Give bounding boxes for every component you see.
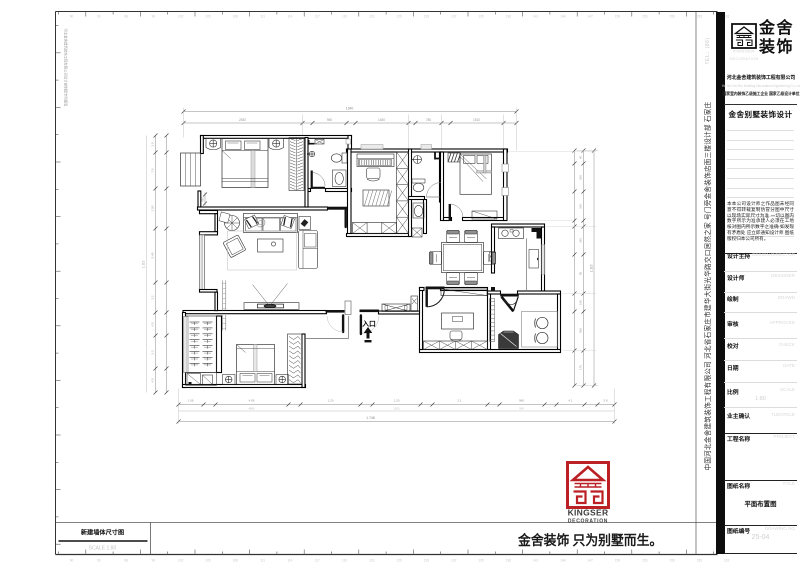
svg-text:1460: 1460 bbox=[378, 118, 385, 122]
svg-text:132: 132 bbox=[451, 15, 457, 19]
svg-text:138: 138 bbox=[506, 559, 512, 563]
svg-text:5.8: 5.8 bbox=[603, 399, 608, 403]
svg-text:96: 96 bbox=[124, 559, 128, 563]
svg-text:156: 156 bbox=[669, 15, 675, 19]
svg-text:1510: 1510 bbox=[473, 118, 480, 122]
svg-text:980: 980 bbox=[519, 407, 524, 411]
svg-text:1.748: 1.748 bbox=[366, 416, 375, 420]
svg-text:147: 147 bbox=[588, 15, 594, 19]
svg-text:1200: 1200 bbox=[393, 407, 400, 411]
svg-text:135: 135 bbox=[478, 559, 484, 563]
svg-text:105: 105 bbox=[205, 15, 211, 19]
svg-text:175: 175 bbox=[579, 365, 583, 370]
svg-text:96: 96 bbox=[124, 15, 128, 19]
svg-text:150: 150 bbox=[615, 15, 621, 19]
svg-text:3.3: 3.3 bbox=[151, 350, 155, 355]
svg-text:345: 345 bbox=[579, 238, 583, 243]
svg-text:DECORATION: DECORATION bbox=[568, 519, 608, 525]
svg-text:99: 99 bbox=[152, 559, 156, 563]
svg-text:123: 123 bbox=[369, 559, 375, 563]
svg-text:156: 156 bbox=[669, 559, 675, 563]
svg-text:7.5: 7.5 bbox=[151, 168, 155, 173]
svg-text:4.88: 4.88 bbox=[249, 399, 255, 403]
svg-text:1.20: 1.20 bbox=[328, 399, 334, 403]
svg-text:147: 147 bbox=[588, 559, 594, 563]
svg-text:1.118: 1.118 bbox=[142, 260, 146, 268]
svg-text:138: 138 bbox=[506, 15, 512, 19]
svg-text:580: 580 bbox=[579, 328, 583, 333]
svg-text:345: 345 bbox=[579, 204, 583, 209]
svg-text:960: 960 bbox=[327, 118, 333, 122]
svg-text:980: 980 bbox=[519, 399, 524, 403]
svg-text:117: 117 bbox=[315, 15, 320, 19]
svg-text:99: 99 bbox=[152, 15, 156, 19]
svg-text:141: 141 bbox=[533, 559, 539, 563]
svg-text:180: 180 bbox=[579, 300, 583, 305]
svg-text:3.0: 3.0 bbox=[151, 142, 155, 147]
svg-text:150: 150 bbox=[615, 559, 621, 563]
svg-text:102: 102 bbox=[178, 15, 184, 19]
svg-text:新建墙体尺寸图: 新建墙体尺寸图 bbox=[81, 529, 124, 537]
svg-text:4880: 4880 bbox=[248, 407, 255, 411]
svg-text:108: 108 bbox=[233, 15, 239, 19]
svg-text:1.20: 1.20 bbox=[394, 399, 400, 403]
svg-text:159: 159 bbox=[697, 559, 703, 563]
svg-text:108: 108 bbox=[233, 559, 239, 563]
svg-text:TEL：(86): TEL：(86) bbox=[705, 37, 711, 64]
svg-text:117: 117 bbox=[315, 559, 320, 563]
svg-text:2830: 2830 bbox=[239, 118, 246, 122]
svg-text:93: 93 bbox=[97, 15, 101, 19]
svg-text:126: 126 bbox=[396, 559, 402, 563]
svg-text:153: 153 bbox=[642, 559, 648, 563]
svg-text:129: 129 bbox=[424, 15, 430, 19]
svg-text:123: 123 bbox=[369, 15, 375, 19]
svg-text:4.5: 4.5 bbox=[151, 322, 155, 327]
svg-text:93: 93 bbox=[97, 559, 101, 563]
svg-text:3.1: 3.1 bbox=[457, 399, 462, 403]
svg-text:144: 144 bbox=[560, 15, 566, 19]
svg-text:中国河北金舍建筑装饰工程有限公司 河北省石家庄市建华大街光华: 中国河北金舍建筑装饰工程有限公司 河北省石家庄市建华大街光华路交口居然之家 号门… bbox=[703, 101, 712, 470]
svg-text:129: 129 bbox=[424, 559, 430, 563]
svg-text:90: 90 bbox=[579, 272, 583, 276]
svg-text:河北金舍建筑装饰工程有限公司设计部制图专用图签: 河北金舍建筑装饰工程有限公司设计部制图专用图签 bbox=[64, 29, 69, 108]
svg-text:114: 114 bbox=[287, 15, 292, 19]
svg-text:60: 60 bbox=[579, 156, 583, 160]
svg-text:5.40: 5.40 bbox=[151, 252, 155, 258]
svg-text:4.0: 4.0 bbox=[151, 378, 155, 383]
svg-text:90: 90 bbox=[70, 15, 74, 19]
svg-text:280: 280 bbox=[579, 175, 583, 180]
svg-text:1.118: 1.118 bbox=[590, 264, 594, 272]
svg-text:90: 90 bbox=[70, 559, 74, 563]
svg-text:780: 780 bbox=[426, 118, 432, 122]
svg-text:860: 860 bbox=[201, 197, 205, 202]
svg-text:141: 141 bbox=[533, 15, 539, 19]
svg-text:120: 120 bbox=[342, 559, 348, 563]
svg-text:1340: 1340 bbox=[346, 107, 354, 111]
svg-text:111: 111 bbox=[260, 559, 265, 563]
svg-text:111: 111 bbox=[260, 15, 265, 19]
svg-text:159: 159 bbox=[697, 15, 703, 19]
svg-text:132: 132 bbox=[451, 559, 457, 563]
svg-text:SCALE 1:80: SCALE 1:80 bbox=[89, 546, 117, 552]
svg-text:126: 126 bbox=[396, 15, 402, 19]
svg-text:144: 144 bbox=[560, 559, 566, 563]
svg-text:105: 105 bbox=[205, 559, 211, 563]
svg-text:135: 135 bbox=[478, 15, 484, 19]
svg-text:102: 102 bbox=[178, 559, 184, 563]
svg-text:114: 114 bbox=[287, 559, 292, 563]
svg-text:1.50: 1.50 bbox=[151, 205, 155, 211]
svg-text:2.2: 2.2 bbox=[151, 295, 155, 300]
svg-text:4.1: 4.1 bbox=[568, 399, 573, 403]
svg-text:1.08: 1.08 bbox=[188, 399, 194, 403]
svg-text:120: 120 bbox=[342, 15, 348, 19]
svg-text:153: 153 bbox=[642, 15, 648, 19]
svg-text:KINGSER: KINGSER bbox=[568, 508, 609, 518]
svg-text:入口: 入口 bbox=[362, 320, 376, 328]
